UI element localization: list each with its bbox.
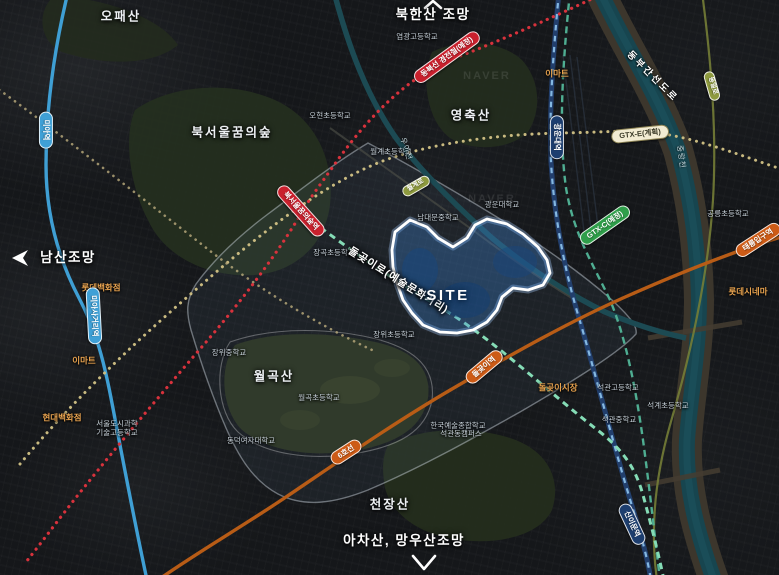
school-label-ohyeon-es: 오현초등학교 — [309, 112, 350, 120]
station-pill-mia: 미아역 — [39, 112, 53, 149]
view-label-namsan: 남산조망 — [40, 251, 96, 265]
line-pill-gtx-e: GTX-E(계획) — [611, 124, 670, 144]
site-analysis-map: 북한산 조망남산조망아차산, 망우산조망오패산북서울꿈의숲영축산월곡산천장산염광… — [0, 0, 779, 575]
site-label: SITE — [426, 288, 469, 304]
line-pill-line6: 6호선 — [328, 437, 364, 467]
school-label-seokgye-es: 석계초등학교 — [647, 402, 688, 410]
poi-label-dolgoji-market: 돌곶이시장 — [538, 384, 577, 393]
school-label-seoul-urban-science-line1: 서울도시과학 — [96, 420, 137, 428]
school-label-namdaemun-ms: 남대문중학교 — [417, 214, 458, 222]
poi-label-lotte-cinema: 롯데시네마 — [728, 288, 767, 297]
mountain-label-wolgoksan: 월곡산 — [254, 370, 295, 383]
street-label-dolgoji-ro: 돌곶이로(예술문화거리) — [346, 246, 450, 317]
view-label-bukhansan: 북한산 조망 — [396, 8, 471, 22]
school-label-jangwi-ms: 장위중학교 — [212, 349, 247, 357]
station-pill-kwangwoon-univ: 광운대역 — [550, 115, 564, 159]
station-pill-sinimun: 신이문역 — [616, 501, 647, 546]
school-label-seokgwan-hs: 석관고등학교 — [597, 384, 638, 392]
mountain-label-cheonjangsan: 천장산 — [370, 498, 411, 511]
road-pill-dongil-ro: 동일로 — [703, 70, 722, 102]
poi-label-emart-north: 이마트 — [545, 70, 568, 79]
school-label-seoul-urban-science-line2: 기술고등학교 — [96, 429, 137, 437]
poi-label-hyundai-dept: 현대백화점 — [42, 414, 81, 423]
park-label-bukseoul-dream-forest: 북서울꿈의숲 — [191, 126, 272, 139]
view-label-achasan-mangwoosan: 아차산, 망우산조망 — [343, 534, 465, 548]
station-pill-bukseoul-dream-forest: 북서울꿈의숲역 — [274, 182, 327, 239]
school-label-yeomgwang-hs: 염광고등학교 — [396, 33, 437, 41]
water-label-uicheon: 우이천 — [399, 137, 414, 162]
line-pill-gtx-c: GTX-C(예정) — [577, 203, 633, 248]
road-label-dongbu-expressway: 동부간선도로 — [625, 50, 680, 105]
station-pill-dolgoji: 돌곶이역 — [463, 348, 505, 387]
road-pill-wolgye-ro: 월계로 — [400, 174, 431, 198]
station-pill-miasageori: 미아사거리역 — [86, 287, 103, 345]
school-label-dongduk-univ: 동덕여자대학교 — [227, 437, 275, 445]
map-watermark-1: NAVER — [463, 71, 511, 83]
station-pill-taereung: 태릉입구역 — [733, 220, 779, 259]
map-watermark-2: NAVER — [468, 194, 516, 206]
mountain-label-yeongchuksan: 영축산 — [451, 109, 492, 122]
mountain-label-opaesan: 오패산 — [101, 10, 142, 23]
school-label-wolgok-es: 월곡초등학교 — [298, 394, 339, 402]
school-label-jangwi-es: 장위초등학교 — [373, 331, 414, 339]
water-label-jungnangcheon: 중랑천 — [675, 145, 686, 170]
school-label-seokgwan-ms: 석관중학교 — [602, 416, 637, 424]
school-label-gongneung-es: 공릉초등학교 — [707, 210, 748, 218]
school-label-karts-line2: 석관동캠퍼스 — [440, 430, 481, 438]
poi-label-emart-west: 이마트 — [72, 357, 95, 366]
map-labels: 북한산 조망남산조망아차산, 망우산조망오패산북서울꿈의숲영축산월곡산천장산염광… — [0, 0, 779, 575]
